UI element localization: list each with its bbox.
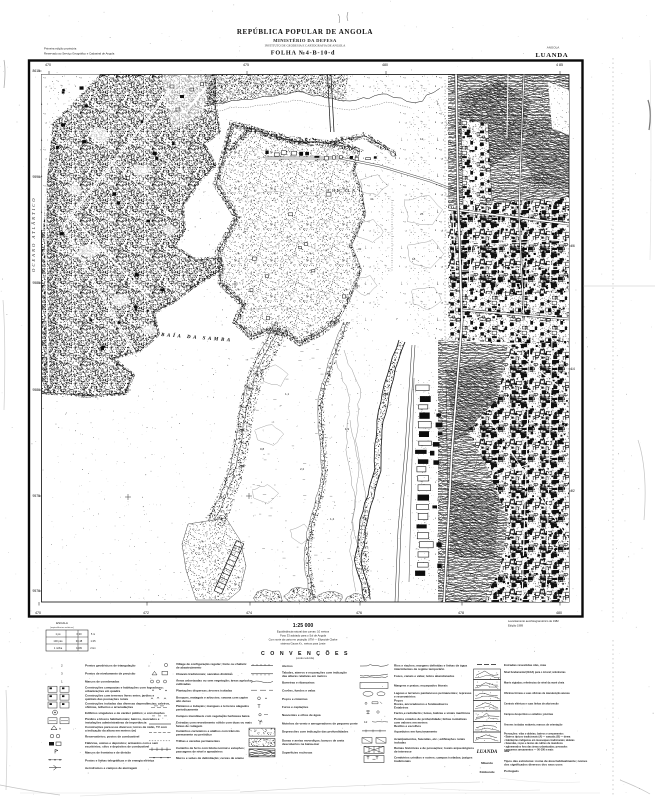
svg-text:18: 18: [412, 257, 416, 261]
svg-text:Edição 1989: Edição 1989: [508, 624, 523, 628]
svg-text:Covões, fundos e valas: Covões, fundos e valas: [282, 689, 316, 693]
svg-text:OCEANO ATLÂNTICO: OCEANO ATLÂNTICO: [31, 196, 36, 272]
svg-text:0,8: 0,8: [260, 447, 265, 451]
svg-text:474: 474: [246, 611, 252, 615]
svg-text:sistema Gauss Kr., metros para: sistema Gauss Kr., metros para Leste: [281, 642, 326, 646]
svg-text:descobertos na baixa-mar: descobertos na baixa-mar: [282, 742, 320, 746]
svg-text:Campos inundáveis com vegetaçã: Campos inundáveis com vegetação herbácea…: [176, 714, 250, 718]
svg-text:Pontos geodésicos de triangula: Pontos geodésicos de triangulação: [85, 664, 136, 668]
svg-text:100 pés: 100 pés: [53, 639, 63, 643]
svg-text:Estaleiros: Estaleiros: [394, 705, 409, 709]
svg-text:instalações administrativas de: instalações administrativas de importânc…: [85, 721, 147, 725]
svg-text:476: 476: [356, 611, 362, 615]
svg-text:INSTITUTO DE GEODESIA E CARTOG: INSTITUTO DE GEODESIA E CARTOGRAFIA DE A…: [265, 44, 346, 48]
svg-text:dos significados diversos dos: dos significados diversos dos seus usos: [504, 762, 563, 766]
svg-text:Com norte da carta em projeção: Com norte da carta em projeção UTM — Eli…: [269, 638, 338, 642]
svg-text:passagens de nível e apeadeiro: passagens de nível e apeadeiros: [176, 749, 223, 753]
svg-text:MINISTÉRIO DA DEFESA: MINISTÉRIO DA DEFESA: [273, 38, 337, 43]
svg-text:1,9: 1,9: [345, 427, 350, 431]
svg-text:Árvores isoladas notáveis; mar: Árvores isoladas notáveis; marcos de ori…: [504, 724, 563, 727]
svg-text:CHICALA: CHICALA: [102, 154, 130, 159]
svg-text:Plantações dispersas; árvores: Plantações dispersas; árvores isoladas: [176, 689, 233, 693]
svg-text:urbanizações em quadra: urbanizações em quadra: [85, 689, 121, 693]
svg-text:REPÚBLICA POPULAR DE ANGOLA: REPÚBLICA POPULAR DE ANGOLA: [237, 28, 373, 36]
svg-text:Oficinas férreas e suas oficin: Oficinas férreas e suas oficinas de manu…: [504, 692, 570, 695]
svg-text:480: 480: [556, 611, 562, 615]
svg-text:1:25: 1:25: [90, 639, 96, 643]
svg-text:Poços e cisternas: Poços e cisternas: [282, 697, 308, 701]
svg-text:a indicação da altura em metro: a indicação da altura em metros (m): [85, 729, 136, 733]
svg-text:1,1: 1,1: [285, 392, 290, 396]
svg-text:Reservatórios; postos de combu: Reservatórios; postos de combustível: [85, 735, 140, 739]
svg-text:ESCALA: ESCALA: [56, 621, 68, 625]
svg-text:Superfícies rochosas: Superfícies rochosas: [282, 750, 313, 754]
svg-text:Campos desportivos e estádios;: Campos desportivos e estádios; piscinas: [504, 713, 554, 716]
svg-text:Marcos de coordenadas: Marcos de coordenadas: [85, 679, 120, 683]
svg-text:Edifícios singulares e de cará: Edifícios singulares e de caráter públic…: [85, 711, 165, 715]
svg-text:Trilhas e veredas permanentes: Trilhas e veredas permanentes: [176, 739, 220, 743]
svg-text:escritórios; silos e depósitos: escritórios; silos e depósitos de combus…: [85, 744, 149, 748]
svg-text:periodicamente: periodicamente: [176, 707, 199, 711]
svg-text:480: 480: [382, 63, 388, 67]
svg-text:5 m: 5 m: [91, 632, 95, 636]
svg-text:faixas de rodagem: faixas de rodagem: [176, 724, 203, 728]
svg-text:Primeira edição provisória: Primeira edição provisória: [44, 47, 77, 51]
svg-text:Postes e linhas telegráficas e: Postes e linhas telegráficas e de energi…: [85, 758, 154, 762]
svg-text:de interesse: de interesse: [394, 750, 412, 754]
svg-text:alto denso: alto denso: [176, 699, 191, 703]
svg-text:Moinhos de vento e aerogerador: Moinhos de vento e aerogeradores de pequ…: [282, 721, 358, 725]
svg-text:Reservado ao Serviço Geográfic: Reservado ao Serviço Geográfico e Cadast…: [44, 52, 115, 56]
svg-text:1 milha: 1 milha: [54, 646, 63, 650]
svg-text:30,48: 30,48: [76, 639, 83, 643]
svg-text:1,4: 1,4: [330, 517, 335, 521]
svg-text:lida: lida: [504, 749, 509, 753]
svg-text:25: 25: [420, 212, 424, 216]
svg-text:Furos e captações: Furos e captações: [282, 705, 309, 709]
svg-text:1:25 000: 1:25 000: [293, 623, 314, 629]
svg-text:CHICALA: CHICALA: [328, 188, 356, 193]
svg-text:Fuso 33 adotado para o Sul de: Fuso 33 adotado para o Sul de Angola: [280, 634, 326, 638]
svg-text:475: 475: [243, 63, 249, 67]
svg-text:Levantamento aerofotogramétric: Levantamento aerofotogramétrico de 1982: [508, 619, 559, 623]
svg-text:isoladas: isoladas: [394, 740, 406, 744]
svg-text:Kimbundu: Kimbundu: [480, 770, 495, 774]
svg-text:Equidistância natural das curv: Equidistância natural das curvas: 10 met…: [277, 630, 330, 634]
svg-text:12: 12: [420, 137, 424, 141]
svg-text:LUANDA: LUANDA: [535, 52, 568, 59]
svg-text:Nível fundamental (IGCA) para: Nível fundamental (IGCA) para o Litoral;…: [504, 671, 566, 674]
svg-text:Português: Português: [504, 769, 519, 773]
svg-text:470: 470: [45, 63, 51, 67]
svg-text:CONVENÇÕES: CONVENÇÕES: [261, 650, 353, 657]
svg-text:Mbundu: Mbundu: [481, 761, 493, 765]
svg-text:(equivalências métricas): (equivalências métricas): [50, 626, 74, 629]
svg-text:41: 41: [370, 197, 374, 201]
svg-text:472: 472: [143, 611, 149, 615]
svg-text:Recifes e escolhos: Recifes e escolhos: [394, 724, 421, 728]
svg-text:32: 32: [358, 247, 362, 251]
svg-text:478: 478: [458, 611, 464, 615]
svg-text:quintais das povoações rurais: quintais das povoações rurais: [85, 697, 129, 701]
svg-text:1609: 1609: [76, 646, 82, 650]
svg-text:Centrais elétricas e suas linh: Centrais elétricas e suas linhas de alta…: [504, 703, 559, 706]
svg-text:permanente ou periódico: permanente ou periódico: [176, 733, 212, 737]
svg-text:intermitentes de regime tempor: intermitentes de regime temporário: [394, 667, 445, 671]
svg-text:cultivadas: cultivadas: [176, 682, 191, 686]
svg-text:Estradas revestidas não, mas: Estradas revestidas não, mas: [504, 663, 547, 667]
svg-text:ANGOLA: ANGOLA: [547, 46, 560, 50]
svg-text:tradicionais: tradicionais: [394, 759, 411, 763]
svg-text:Aterros: Aterros: [282, 664, 293, 668]
svg-text:LUANDA: LUANDA: [476, 750, 498, 755]
svg-text:Margens e praias; escarpados l: Margens e praias; escarpados litorais: [394, 683, 448, 687]
svg-text:Pontos de nivelamento de preci: Pontos de nivelamento de precisão: [85, 671, 136, 675]
svg-text:⌂: ⌂: [148, 664, 150, 668]
svg-text:Marés vigiadas; referências de: Marés vigiadas; referências de nível da …: [504, 682, 565, 685]
svg-text:Aquedutos em funcionamento: Aquedutos em funcionamento: [394, 729, 437, 733]
svg-text:oficinas, telheiros e arrecada: oficinas, telheiros e arrecadações: [85, 705, 134, 709]
svg-text:(escala reduzida): (escala reduzida): [296, 657, 315, 660]
svg-text:Muros e sebes de delimitação;: Muros e sebes de delimitação; cercas de …: [176, 756, 244, 760]
svg-text:Nascentes e olhos de água: Nascentes e olhos de água: [282, 713, 321, 717]
svg-text:1 pé: 1 pé: [55, 632, 61, 636]
svg-text:Chavais tradicionais; sanzalas: Chavais tradicionais; sanzalas distintas: [176, 672, 233, 676]
svg-text:470: 470: [35, 611, 41, 615]
svg-text:0,30: 0,30: [76, 632, 82, 636]
svg-text:Aeródromos e campos de aterrag: Aeródromos e campos de aterragem: [85, 766, 138, 770]
svg-text:das alturas relativas em metro: das alturas relativas em metros: [282, 674, 327, 678]
svg-text:• pequenos arruamentos — 50-10: • pequenos arruamentos — 50-100 e mais: [504, 749, 554, 752]
svg-text:4 85: 4 85: [556, 63, 563, 67]
svg-text:12: 12: [364, 720, 368, 724]
svg-text:2 km: 2 km: [90, 646, 96, 650]
svg-text:2,2: 2,2: [300, 467, 305, 471]
svg-text:Barreiras e ribanceiras: Barreiras e ribanceiras: [282, 680, 315, 684]
svg-text:Faróis e radiofaróis; boias, b: Faróis e radiofaróis; boias, balizas e s…: [394, 711, 471, 715]
svg-text:de abastecimento: de abastecimento: [176, 665, 202, 669]
svg-text:Fozes, canais e valas; leitos: Fozes, canais e valas; leitos abandonado…: [394, 674, 455, 678]
svg-text:FOLHA №4-B-10-d: FOLHA №4-B-10-d: [271, 50, 335, 57]
svg-text:Depressões com indicação das p: Depressões com indicação das profundidad…: [282, 730, 349, 734]
svg-text:Marcos de fronteira e de divis: Marcos de fronteira e de divisão: [85, 750, 131, 754]
